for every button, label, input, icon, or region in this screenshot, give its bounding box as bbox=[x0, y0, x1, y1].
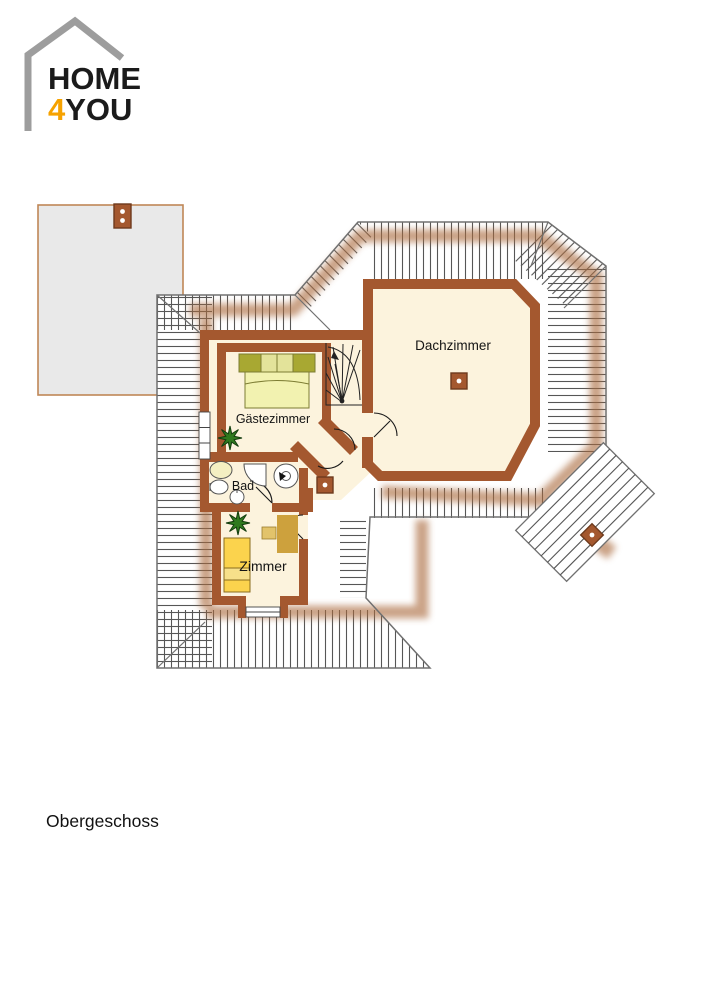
room-label-zimmer: Zimmer bbox=[239, 558, 287, 574]
plant-icon bbox=[218, 426, 242, 450]
chimney-icon bbox=[114, 204, 131, 228]
desk bbox=[277, 515, 298, 553]
window-icon bbox=[246, 607, 280, 617]
chimney-icon bbox=[451, 373, 467, 389]
floorplan-drawing: Dachzimmer Gästezimmer Bad Zimmer bbox=[0, 0, 706, 1000]
room-label-bad: Bad bbox=[232, 479, 254, 493]
floor-label: Obergeschoss bbox=[46, 811, 159, 832]
room-dachzimmer bbox=[361, 284, 535, 476]
room-label-gaestezimmer: Gästezimmer bbox=[236, 412, 310, 426]
guest-bed bbox=[239, 354, 315, 408]
page: HOME 4YOU bbox=[0, 0, 706, 1000]
room-label-dachzimmer: Dachzimmer bbox=[415, 338, 491, 353]
chimney-icon bbox=[317, 477, 333, 493]
chair bbox=[262, 527, 276, 539]
door-opening bbox=[361, 413, 373, 437]
window-icon bbox=[199, 412, 210, 459]
plant-icon bbox=[226, 511, 250, 535]
